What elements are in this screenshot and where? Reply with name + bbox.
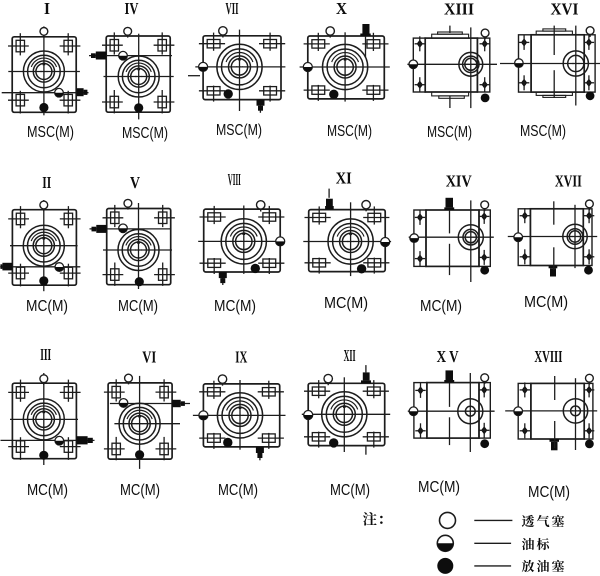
svg-text:MSC(M): MSC(M) [327, 123, 372, 140]
svg-text:MC(M): MC(M) [418, 479, 460, 496]
svg-text:XVI: XVI [551, 0, 579, 19]
svg-text:MC(M): MC(M) [218, 482, 258, 499]
svg-text:X V: X V [437, 347, 460, 366]
svg-text:MC(M): MC(M) [324, 295, 368, 312]
svg-text:IV: IV [125, 0, 140, 18]
svg-text:MC(M): MC(M) [26, 298, 68, 315]
svg-text:XVIII: XVIII [534, 347, 562, 366]
svg-text:VIII: VIII [228, 170, 241, 189]
svg-text:VI: VI [142, 348, 156, 367]
svg-text:MC(M): MC(M) [120, 482, 160, 499]
svg-text:X: X [336, 0, 348, 18]
svg-text:XII: XII [344, 346, 356, 365]
svg-text:II: II [42, 173, 51, 192]
svg-text:V: V [130, 173, 141, 192]
svg-text:MC(M): MC(M) [214, 298, 256, 315]
svg-text:XIII: XIII [444, 0, 474, 19]
svg-text:XI: XI [336, 169, 352, 188]
svg-text:MSC(M): MSC(M) [27, 124, 74, 141]
svg-text:MC(M): MC(M) [420, 298, 462, 315]
svg-text:MC(M): MC(M) [330, 482, 370, 499]
svg-text:MC(M): MC(M) [118, 298, 158, 315]
svg-text:IX: IX [235, 348, 247, 367]
svg-text:MC(M): MC(M) [524, 294, 568, 311]
svg-text:MSC(M): MSC(M) [427, 124, 472, 141]
svg-text:I: I [44, 0, 50, 18]
svg-text:XIV: XIV [446, 172, 473, 191]
svg-text:VII: VII [226, 0, 239, 18]
svg-text:MC(M): MC(M) [528, 484, 570, 501]
svg-text:III: III [40, 345, 51, 364]
svg-text:MSC(M): MSC(M) [520, 123, 566, 140]
svg-text:XVII: XVII [555, 172, 582, 191]
svg-text:MSC(M): MSC(M) [122, 125, 168, 142]
svg-text:MC(M): MC(M) [27, 482, 68, 499]
svg-text:MSC(M): MSC(M) [216, 122, 262, 139]
